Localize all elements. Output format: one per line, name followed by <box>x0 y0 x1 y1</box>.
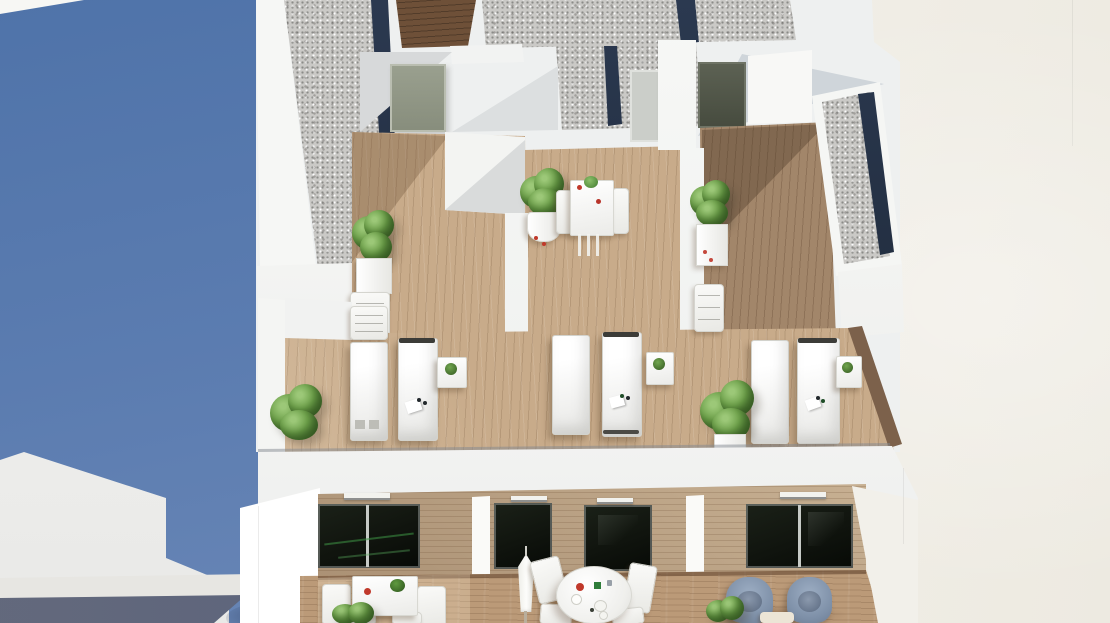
deck-plant-unit1 <box>270 384 324 442</box>
sun-lounger <box>751 340 789 444</box>
window-vent-unit2-left <box>511 496 547 502</box>
table-item-green-cube <box>594 582 601 589</box>
balcony-plant-unit3 <box>706 596 746 623</box>
pot-flowers-red <box>534 236 538 240</box>
parasol-tip <box>525 546 527 556</box>
sun-lounger <box>602 332 642 437</box>
lounger-footrest <box>603 430 639 434</box>
window-reflection-chair <box>598 515 638 545</box>
dining-table-round <box>556 566 632 623</box>
window-divider-unit1 <box>366 505 369 567</box>
table-item-gray <box>607 580 612 586</box>
terrace-plant-unit3 <box>690 180 730 228</box>
side-table-plant <box>842 362 853 373</box>
table-cup-small <box>599 611 608 620</box>
lounger-items <box>816 396 820 400</box>
bistro-plant <box>584 176 598 188</box>
planter-flowers-red <box>703 250 707 254</box>
right-end-wall-seam <box>903 468 904 544</box>
lounger-items <box>417 398 421 402</box>
lounger-items <box>620 394 624 398</box>
table-plant-green <box>390 579 405 592</box>
window-reflection-chair <box>808 512 844 546</box>
sun-lounger <box>398 338 438 441</box>
side-table-plant <box>653 358 665 370</box>
window-vent-unit1 <box>344 493 390 500</box>
terrace-door-unit3 <box>698 62 746 128</box>
window-divider-unit3 <box>798 505 801 567</box>
table-item-red <box>364 588 371 595</box>
sun-lounger <box>552 335 590 435</box>
table-item-red <box>576 583 584 591</box>
side-table-plant <box>445 363 457 375</box>
table-item-dark <box>590 608 594 612</box>
deck-plant-unit3 <box>700 380 756 442</box>
lounger-headrest <box>798 338 837 343</box>
folded-chairs-unit3 <box>694 284 724 332</box>
lounger-headrest <box>399 338 435 343</box>
parasol-pole <box>524 611 527 623</box>
terrace-planter-unit3 <box>696 224 728 266</box>
folded-chairs-unit1 <box>350 306 388 340</box>
table-cup <box>571 594 582 605</box>
window-vent-unit3 <box>780 492 826 499</box>
window-vent-unit2-right <box>597 498 633 504</box>
table-saucer <box>594 600 607 612</box>
bistro-table-legs <box>578 234 604 256</box>
balcony-shrub-unit1 <box>332 602 378 623</box>
bistro-chair-right <box>612 188 629 234</box>
lounger-headrest <box>603 332 639 337</box>
balcony-window-unit1 <box>318 504 420 568</box>
bistro-items-red <box>577 185 582 190</box>
lounger-foot-vents <box>355 420 365 429</box>
terrace-door-unit1 <box>390 64 446 132</box>
architectural-render <box>0 0 1110 623</box>
terrace-planter-unit1 <box>356 258 392 294</box>
sun-lounger <box>797 338 840 444</box>
armchair-side-table <box>760 612 794 623</box>
corner-pillar-seam <box>258 506 259 623</box>
terrace-plant-unit1 <box>352 210 394 264</box>
